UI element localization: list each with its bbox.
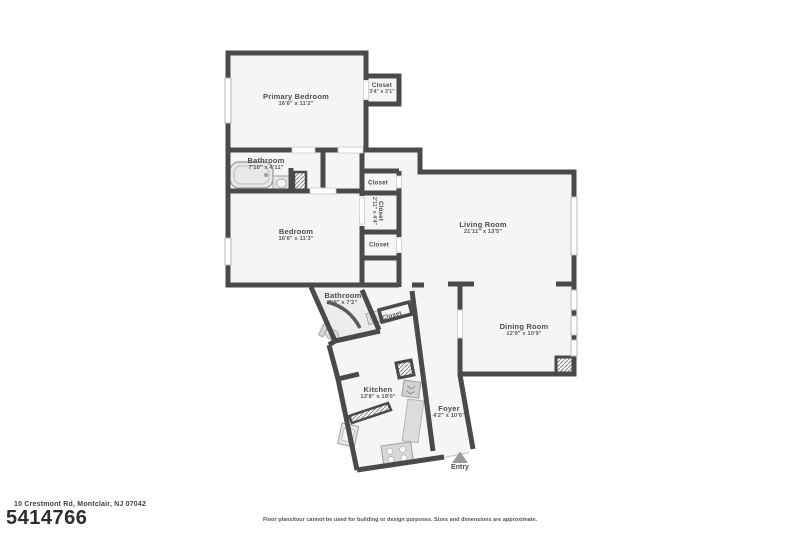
door-opening bbox=[458, 310, 463, 338]
door-opening bbox=[310, 188, 336, 194]
chimney-hatch-dining bbox=[556, 357, 574, 374]
window bbox=[225, 238, 231, 265]
room-label-hall-closet-top: Closet bbox=[368, 179, 388, 186]
room-label-entry: Entry bbox=[451, 464, 469, 472]
door-opening bbox=[360, 198, 365, 224]
room-label-bedroom: Bedroom 16'6" x 11'3" bbox=[278, 227, 313, 243]
floorplan-image: Primary Bedroom 16'6" x 11'2" Closet 3'4… bbox=[0, 0, 800, 533]
disclaimer-text: Floor plans/tour cannot be used for buil… bbox=[0, 517, 800, 523]
room-label-kitchen: Kitchen 13'8" x 19'0" bbox=[360, 385, 395, 401]
linen-closet-hatch bbox=[294, 172, 306, 190]
chimney-hatch-kitchen bbox=[396, 360, 414, 378]
window bbox=[225, 78, 231, 123]
door-opening bbox=[397, 176, 402, 188]
window bbox=[571, 290, 577, 310]
room-label-primary-bedroom: Primary Bedroom 16'6" x 11'2" bbox=[263, 92, 329, 108]
window bbox=[571, 197, 577, 255]
room-label-half-bathroom: Bathroom 6'9" x 7'2" bbox=[324, 291, 361, 307]
door-opening bbox=[292, 147, 315, 153]
fridge-icon bbox=[402, 380, 421, 398]
room-label-hall-closet-bottom: Closet bbox=[369, 241, 389, 248]
window bbox=[571, 340, 577, 356]
room-label-main-bathroom: Bathroom 7'10" x 4'11" bbox=[247, 156, 284, 172]
door-opening bbox=[397, 238, 402, 252]
floorplan-canvas bbox=[0, 0, 800, 533]
window bbox=[571, 316, 577, 335]
room-label-living-room: Living Room 21'11" x 13'5" bbox=[459, 220, 507, 236]
room-label-hall-closet-mid: Closet 2'11" x 4'4" bbox=[370, 197, 384, 225]
room-label-dining-room: Dining Room 12'9" x 10'9" bbox=[500, 322, 549, 338]
room-label-foyer: Foyer 4'2" x 10'6" bbox=[433, 404, 465, 420]
room-label-primary-closet: Closet 3'4" x 3'1" bbox=[369, 82, 394, 96]
door-opening bbox=[364, 81, 369, 99]
door-opening bbox=[338, 147, 363, 153]
